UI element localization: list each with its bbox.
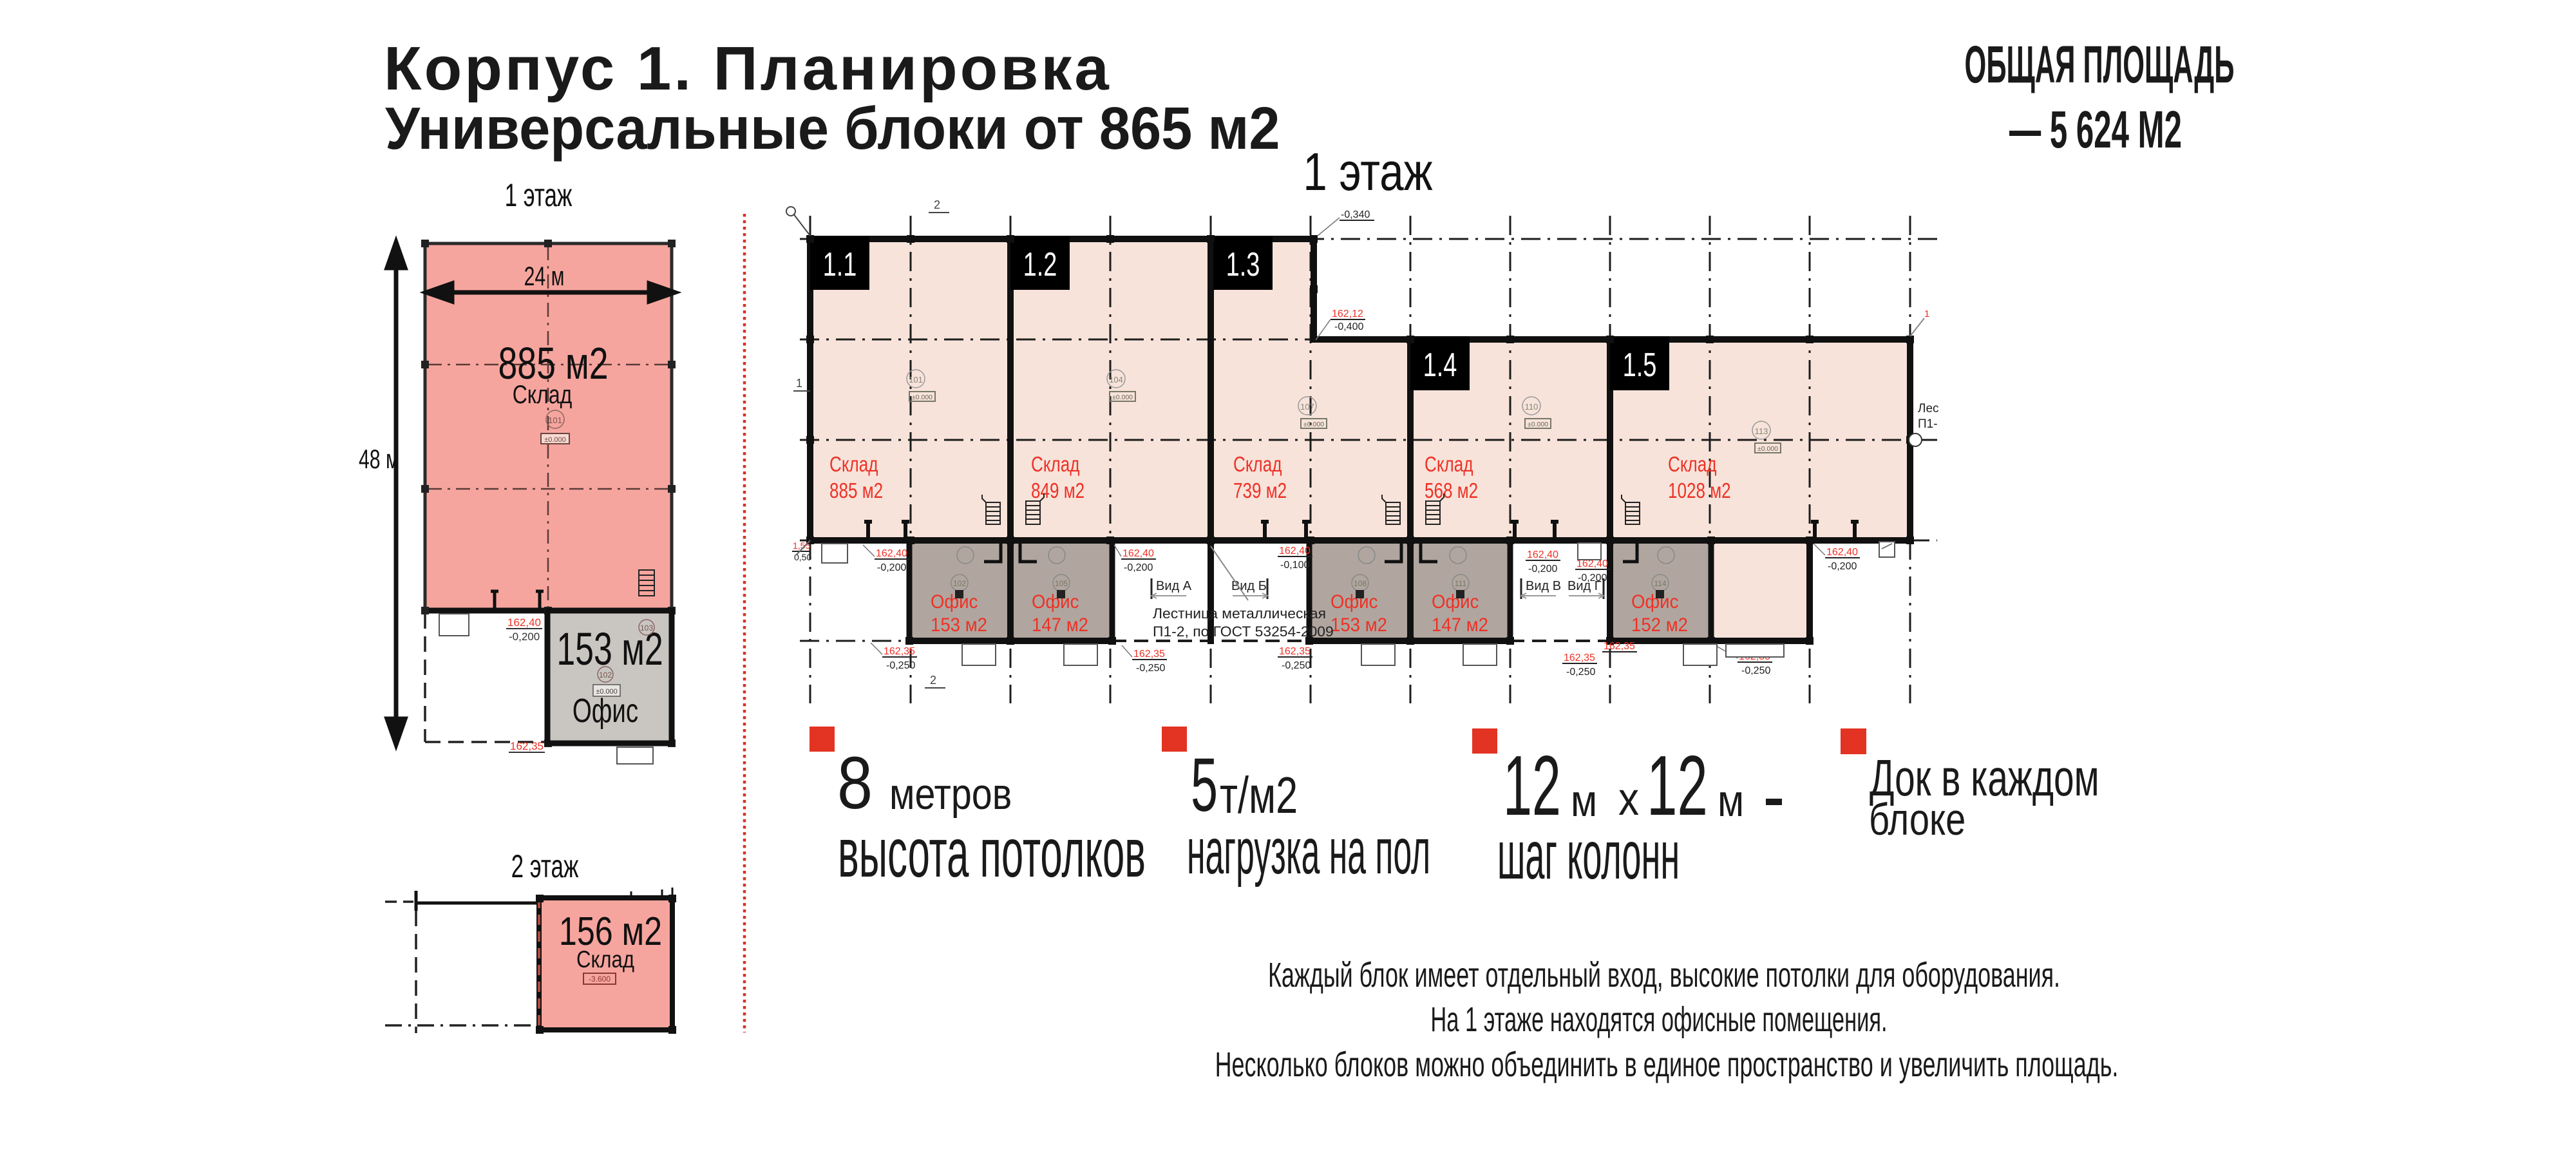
- svg-text:— 5 624 М2: — 5 624 М2: [2009, 100, 2182, 159]
- svg-text:-0,250: -0,250: [1741, 665, 1770, 676]
- svg-text:Склад: Склад: [1233, 453, 1282, 477]
- svg-text:Лес: Лес: [1918, 402, 1939, 415]
- svg-text:Вид Г: Вид Г: [1567, 579, 1602, 593]
- svg-text:Универсальные блоки от 865 м2: Универсальные блоки от 865 м2: [385, 95, 1280, 162]
- svg-text:Офис: Офис: [1432, 591, 1479, 613]
- svg-text:Склад: Склад: [1031, 453, 1079, 477]
- svg-text:113: 113: [1755, 426, 1768, 436]
- svg-text:Склад: Склад: [513, 380, 573, 409]
- svg-text:2 этаж: 2 этаж: [511, 849, 579, 885]
- svg-text:Вид В: Вид В: [1526, 579, 1561, 593]
- svg-text:Склад: Склад: [1425, 453, 1473, 477]
- svg-text:1: 1: [1924, 309, 1929, 319]
- svg-text:нагрузка на пол: нагрузка на пол: [1187, 815, 1430, 888]
- svg-text:2: 2: [930, 674, 936, 687]
- svg-text:-3.600: -3.600: [589, 975, 611, 984]
- svg-text:±0.000: ±0.000: [1303, 421, 1324, 428]
- svg-text:±0.000: ±0.000: [544, 436, 566, 444]
- svg-text:162,35: 162,35: [510, 740, 544, 752]
- svg-text:885 м2: 885 м2: [829, 479, 883, 503]
- svg-text:-0,200: -0,200: [1528, 564, 1557, 575]
- svg-text:-0,200: -0,200: [1828, 561, 1857, 572]
- svg-text:Несколько блоков можно объедин: Несколько блоков можно объединить в един…: [1215, 1045, 2119, 1084]
- svg-text:1.2: 1.2: [1023, 245, 1057, 283]
- svg-text:162,12: 162,12: [1332, 309, 1363, 319]
- svg-text:Офис: Офис: [1631, 591, 1678, 613]
- svg-text:147 м2: 147 м2: [1032, 614, 1088, 636]
- svg-text:-0,200: -0,200: [877, 562, 906, 573]
- svg-text:±0.000: ±0.000: [1757, 445, 1778, 453]
- svg-text:162,35: 162,35: [1564, 652, 1595, 663]
- svg-text:162,40: 162,40: [1527, 549, 1558, 560]
- svg-text:849 м2: 849 м2: [1031, 479, 1084, 503]
- svg-text:1 этаж: 1 этаж: [505, 178, 573, 214]
- svg-text:Корпус 1. Планировка: Корпус 1. Планировка: [384, 34, 1112, 103]
- svg-text:±0.000: ±0.000: [596, 688, 618, 696]
- svg-text:105: 105: [1055, 579, 1068, 588]
- svg-text:101: 101: [909, 375, 923, 385]
- svg-text:Вид Б: Вид Б: [1231, 579, 1267, 593]
- svg-text:1.3: 1.3: [1226, 245, 1260, 283]
- svg-text:162,40: 162,40: [507, 616, 541, 629]
- svg-text:высота потолков: высота потолков: [838, 813, 1146, 892]
- svg-text:114: 114: [1654, 579, 1666, 588]
- svg-text:1.1: 1.1: [823, 245, 857, 283]
- svg-text:±0.000: ±0.000: [912, 394, 933, 401]
- svg-text:48 м: 48 м: [359, 444, 399, 474]
- svg-text:162,35: 162,35: [1604, 641, 1635, 652]
- svg-text:ОБЩАЯ ПЛОЩАДЬ: ОБЩАЯ ПЛОЩАДЬ: [1965, 35, 2235, 93]
- svg-text:Склад: Склад: [1668, 453, 1716, 477]
- svg-text:104: 104: [1109, 375, 1123, 385]
- svg-text:1.4: 1.4: [1423, 346, 1457, 383]
- svg-text:шаг колонн: шаг колонн: [1497, 817, 1680, 893]
- svg-text:1 этаж: 1 этаж: [1303, 142, 1433, 202]
- svg-text:-0,250: -0,250: [886, 660, 915, 671]
- svg-text:-0,200: -0,200: [509, 631, 540, 643]
- svg-text:108: 108: [1354, 579, 1367, 588]
- svg-text:Склад: Склад: [829, 453, 878, 477]
- svg-text:Каждый блок имеет отдельный вх: Каждый блок имеет отдельный вход, высоки…: [1268, 955, 2060, 994]
- svg-text:8: 8: [837, 741, 873, 824]
- svg-text:147 м2: 147 м2: [1432, 614, 1488, 636]
- svg-text:блоке: блоке: [1869, 795, 1965, 844]
- svg-text:101: 101: [548, 415, 562, 425]
- svg-text:Офис: Офис: [573, 692, 638, 729]
- svg-text:Склад: Склад: [576, 947, 634, 973]
- svg-text:Офис: Офис: [1331, 591, 1378, 613]
- svg-text:162,40: 162,40: [1122, 548, 1154, 559]
- svg-text:П1-2, по ГОСТ 53254-2009: П1-2, по ГОСТ 53254-2009: [1153, 623, 1334, 640]
- svg-text:162,35: 162,35: [884, 646, 915, 657]
- svg-text:103: 103: [640, 623, 653, 632]
- svg-text:153 м2: 153 м2: [1331, 614, 1387, 636]
- svg-text:162,35: 162,35: [1133, 649, 1165, 660]
- svg-text:-0,400: -0,400: [1334, 321, 1363, 332]
- svg-text:107: 107: [1300, 402, 1314, 412]
- svg-text:-0,100: -0,100: [1280, 560, 1309, 571]
- svg-text:-0,250: -0,250: [1136, 663, 1165, 674]
- svg-text:±0.000: ±0.000: [1528, 421, 1548, 428]
- svg-text:739 м2: 739 м2: [1233, 479, 1287, 503]
- svg-text:На 1 этаже находятся офисные п: На 1 этаже находятся офисные помещения.: [1430, 1000, 1887, 1039]
- svg-text:162,35: 162,35: [1279, 646, 1311, 657]
- svg-text:Лестница металлическая: Лестница металлическая: [1153, 605, 1326, 622]
- svg-text:Вид А: Вид А: [1156, 579, 1192, 593]
- svg-text:-0,250: -0,250: [1566, 667, 1595, 678]
- svg-text:Офис: Офис: [1032, 591, 1079, 613]
- svg-text:м: м: [1718, 775, 1744, 826]
- svg-text:111: 111: [1455, 579, 1467, 588]
- svg-text:110: 110: [1525, 402, 1539, 412]
- svg-text:-0,200: -0,200: [1124, 562, 1153, 573]
- svg-text:568 м2: 568 м2: [1425, 479, 1478, 503]
- svg-text:1028 м2: 1028 м2: [1668, 479, 1731, 503]
- svg-text:1.5: 1.5: [1623, 346, 1657, 383]
- svg-text:-0,340: -0,340: [1341, 209, 1370, 220]
- svg-text:2: 2: [934, 198, 940, 211]
- svg-text:162,40: 162,40: [1279, 546, 1311, 556]
- svg-text:П1-: П1-: [1918, 417, 1938, 431]
- svg-text:102: 102: [953, 579, 966, 588]
- svg-text:метров: метров: [889, 770, 1012, 819]
- svg-text:5: 5: [1191, 742, 1218, 827]
- svg-text:162,40: 162,40: [1826, 547, 1858, 558]
- svg-text:Офис: Офис: [931, 591, 978, 613]
- svg-text:152 м2: 152 м2: [1631, 614, 1688, 636]
- svg-text:-0,250: -0,250: [1282, 660, 1311, 671]
- svg-text:162,40: 162,40: [876, 548, 907, 559]
- svg-text:±0.000: ±0.000: [1112, 394, 1133, 401]
- svg-text:102: 102: [599, 670, 612, 680]
- svg-text:1: 1: [796, 377, 802, 390]
- svg-text:24 м: 24 м: [524, 261, 565, 291]
- svg-text:153 м2: 153 м2: [931, 614, 987, 636]
